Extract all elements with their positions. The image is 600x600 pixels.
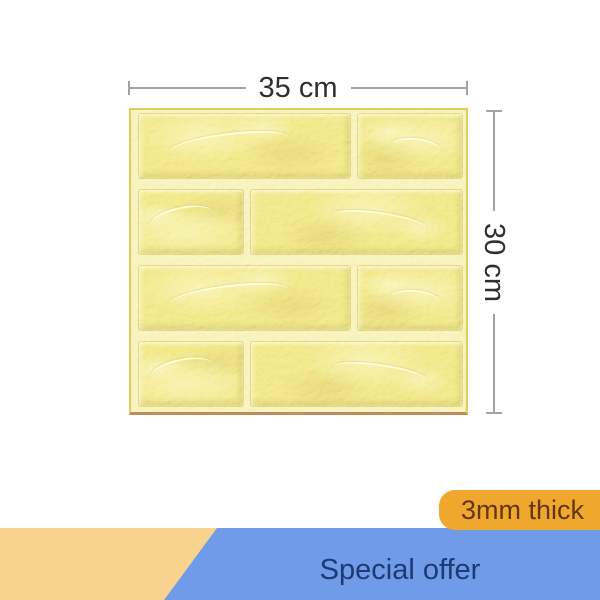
dimension-line — [493, 112, 495, 211]
product-panel — [129, 108, 468, 415]
width-dimension-label: 35 cm — [246, 72, 351, 104]
dimension-end-tick — [486, 412, 502, 414]
brick — [250, 189, 463, 255]
offer-banner: Special offer — [0, 528, 600, 600]
brick-row — [138, 265, 463, 331]
dimension-line — [493, 314, 495, 413]
product-image: 35 cm 30 cm 3mm thick — [0, 0, 600, 600]
brick — [138, 189, 244, 255]
height-dimension-label: 30 cm — [477, 211, 511, 314]
brick-row — [138, 341, 463, 407]
height-dimension: 30 cm — [477, 110, 511, 414]
dimension-end-tick — [466, 81, 468, 95]
brick-row — [138, 113, 463, 179]
thickness-badge: 3mm thick — [439, 490, 600, 530]
brick-grid — [138, 113, 463, 407]
brick — [357, 265, 463, 331]
brick — [138, 341, 244, 407]
brick — [138, 265, 351, 331]
brick — [138, 113, 351, 179]
offer-banner-label: Special offer — [320, 554, 481, 587]
brick — [357, 113, 463, 179]
brick-row — [138, 189, 463, 255]
corner-ribbon — [0, 528, 217, 600]
offer-banner-label-wrap: Special offer — [200, 528, 600, 600]
dimension-line — [130, 87, 246, 89]
brick — [250, 341, 463, 407]
dimension-line — [351, 87, 467, 89]
width-dimension: 35 cm — [128, 72, 468, 104]
thickness-badge-label: 3mm thick — [461, 495, 584, 526]
